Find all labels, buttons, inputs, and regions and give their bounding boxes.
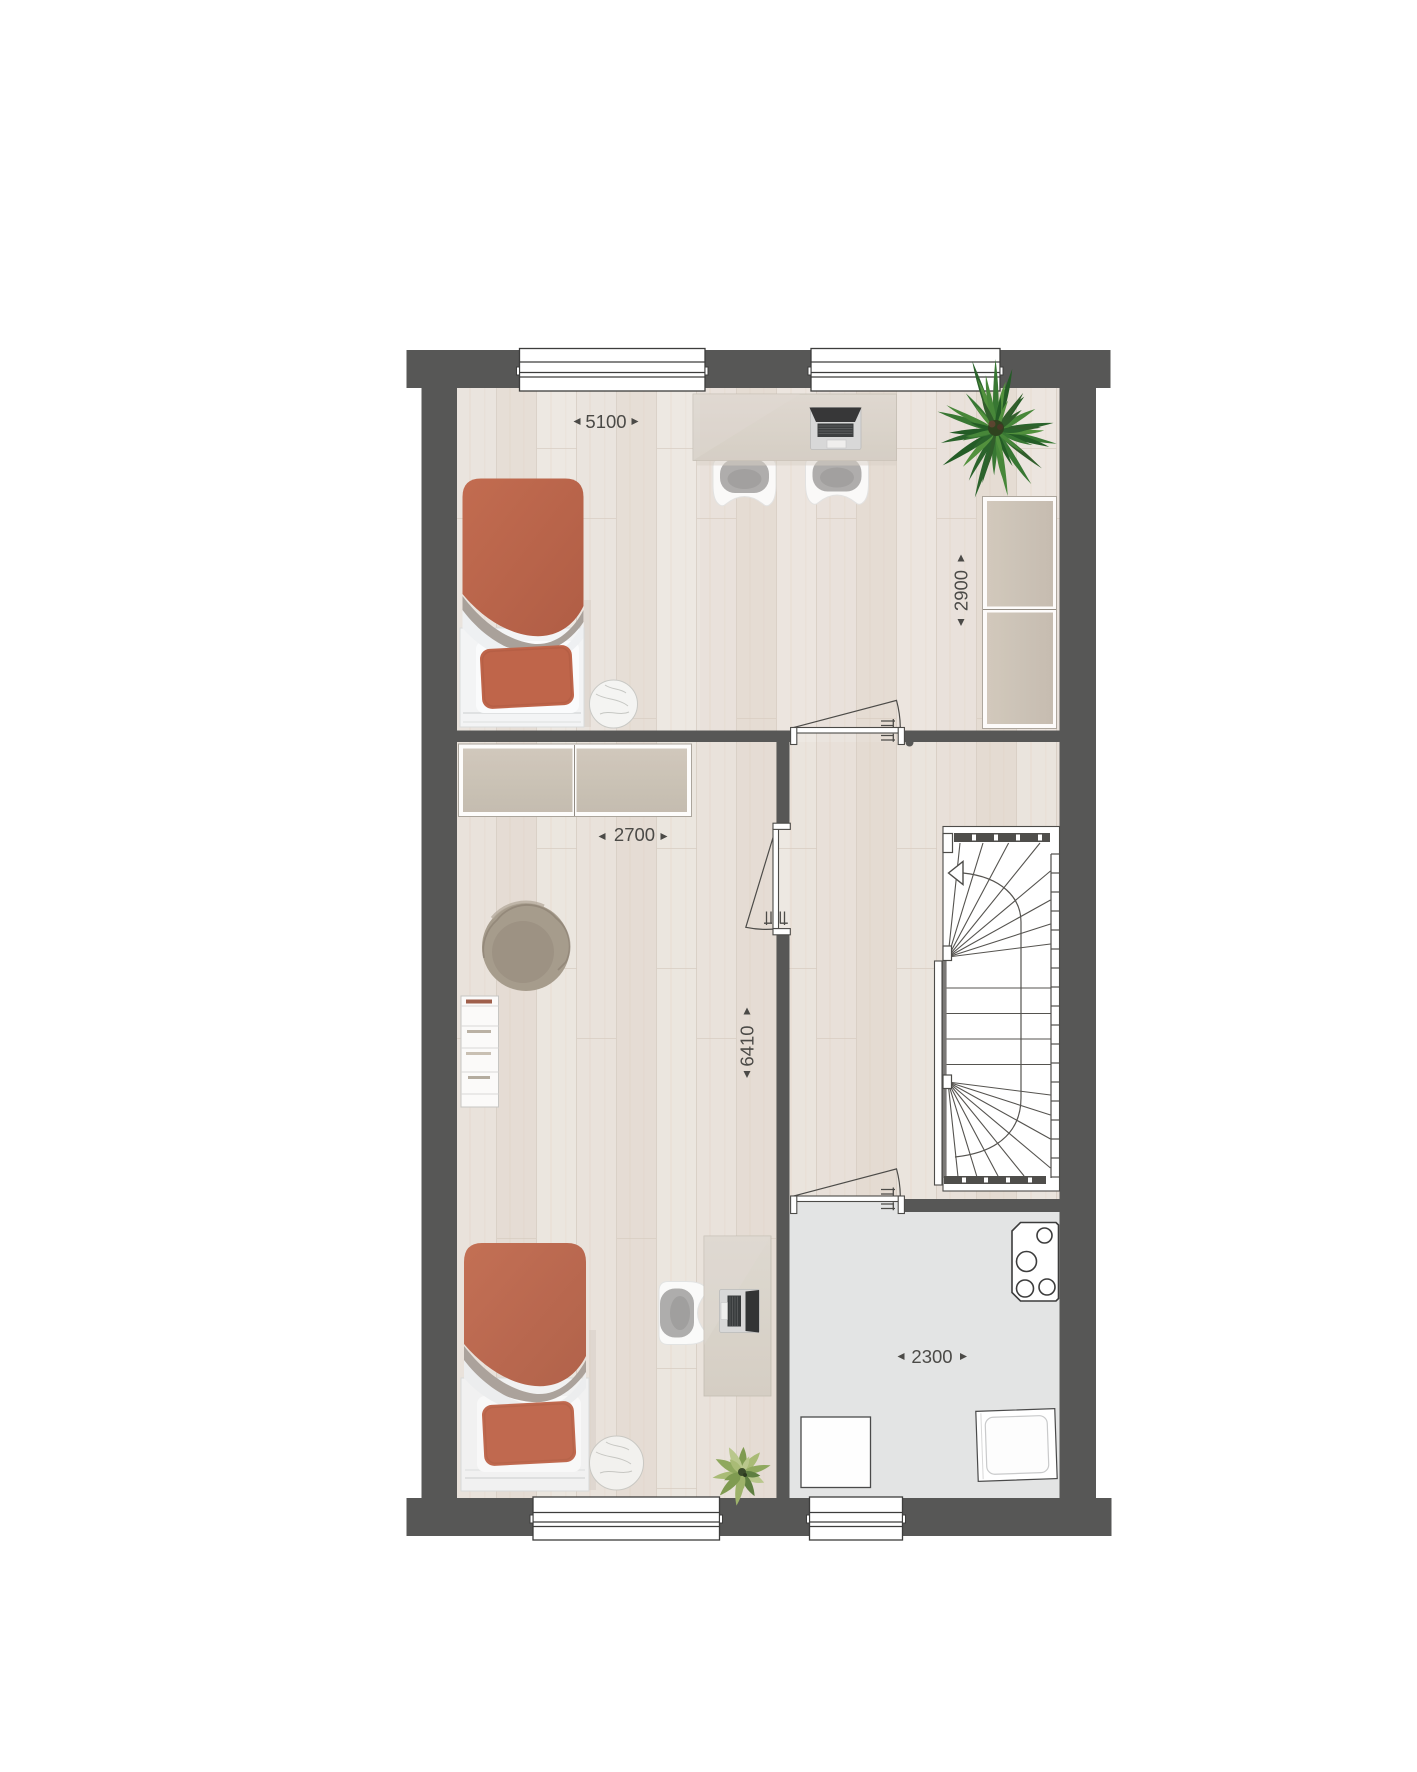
- svg-text:2300: 2300: [911, 1346, 952, 1367]
- svg-text:5100: 5100: [585, 411, 626, 432]
- svg-text:6410: 6410: [737, 1025, 758, 1066]
- svg-text:2900: 2900: [951, 570, 972, 611]
- svg-text:2700: 2700: [614, 824, 655, 845]
